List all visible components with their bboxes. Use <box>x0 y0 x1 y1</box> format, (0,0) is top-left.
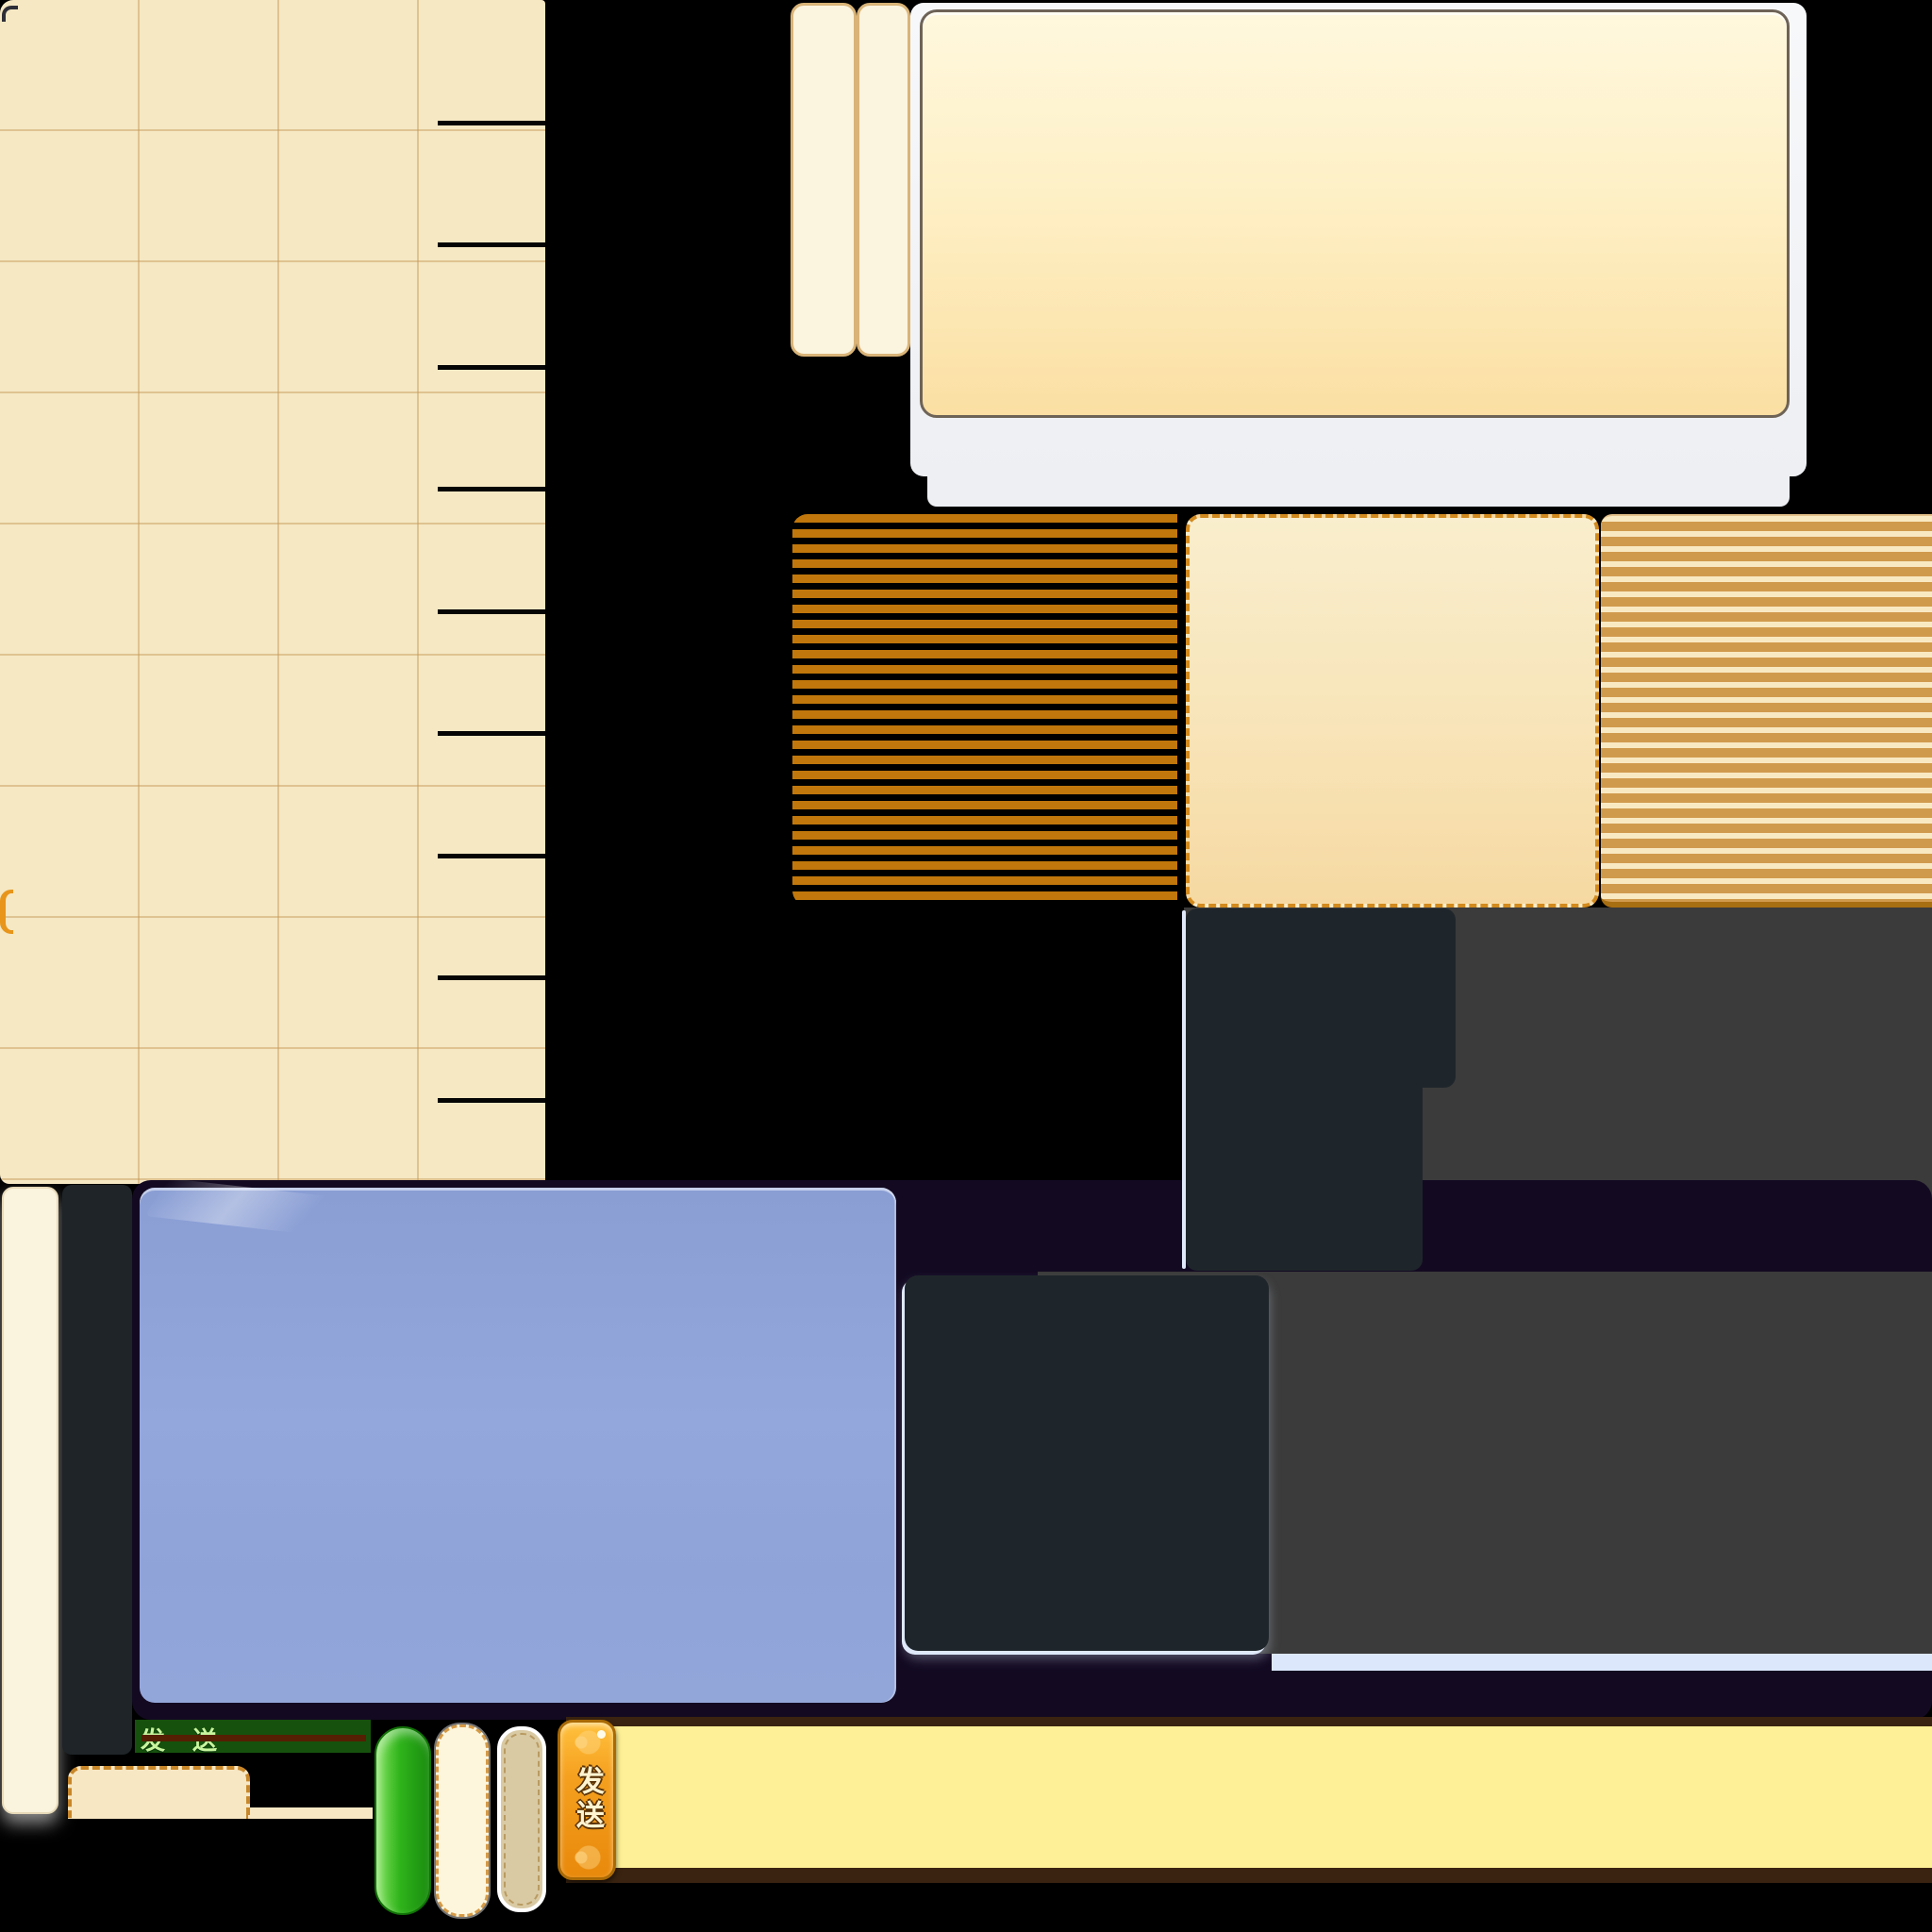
ruler-tick <box>438 1098 545 1103</box>
cream-dashed-pill-button[interactable] <box>436 1724 489 1917</box>
ruler-tick <box>438 365 545 370</box>
texture-atlas-canvas: 发 送 发送 <box>0 0 1932 1932</box>
send-button[interactable]: 发送 <box>558 1720 616 1880</box>
tan-stripe-region <box>1601 514 1932 908</box>
green-scrollbar-thumb[interactable] <box>375 1726 431 1915</box>
swirl-ornament-bottom-icon <box>566 1841 604 1874</box>
corner-hook-icon <box>2 6 18 22</box>
dark-front-panel-upper <box>1186 908 1423 1271</box>
ruler-tick <box>438 854 545 858</box>
send-bar-divider <box>142 1735 366 1741</box>
dashed-input-box[interactable] <box>68 1766 250 1819</box>
dashed-border-panel <box>1186 514 1599 908</box>
tan-pill-inner-border <box>504 1733 540 1906</box>
ruler-tick <box>438 731 545 736</box>
lavender-glow-strip <box>1272 1654 1932 1671</box>
cream-slat-bar <box>791 3 857 357</box>
ruler-tick <box>438 975 545 980</box>
orange-stripe-region <box>792 514 1177 906</box>
black-scroll-track[interactable] <box>62 1185 132 1755</box>
send-button-label: 发送 <box>566 1766 608 1834</box>
ruler-tick <box>438 487 545 491</box>
blue-glossy-panel <box>140 1188 896 1703</box>
grid-list-panel <box>0 0 545 1184</box>
cream-slat-bar <box>857 3 910 357</box>
orange-bracket-icon <box>0 890 13 934</box>
cream-scroll-track[interactable] <box>2 1187 58 1814</box>
ruler-tick <box>438 242 545 247</box>
dialog-frame-bottom-tab <box>927 475 1790 507</box>
dark-front-panel-lower <box>905 1275 1269 1651</box>
ruler-tick <box>438 609 545 614</box>
highlight-dot-icon <box>597 1730 606 1739</box>
tan-pill-button[interactable] <box>497 1726 546 1912</box>
dark-front-panel-upper-extension <box>1406 908 1456 1088</box>
dashed-input-box-strip <box>250 1807 373 1819</box>
chat-input-field[interactable] <box>566 1717 1932 1883</box>
dialog-content-panel <box>920 9 1790 418</box>
ruler-tick <box>438 121 545 125</box>
